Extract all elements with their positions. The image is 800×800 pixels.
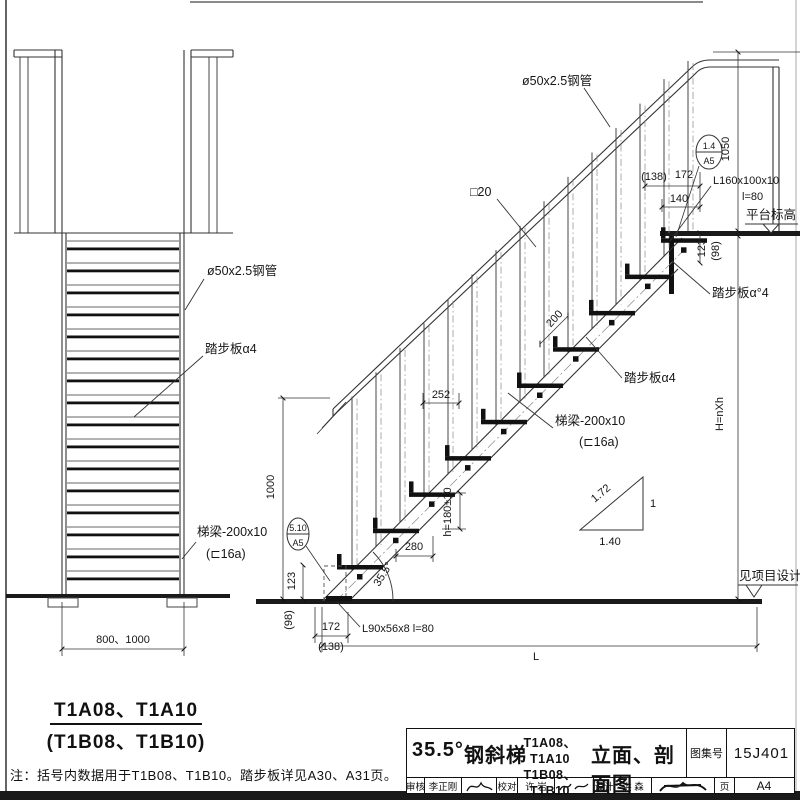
section-tread-label-mid: 踏步板α4: [624, 371, 676, 385]
atlas-number-label: 图集号: [687, 729, 727, 777]
title-block-row-1: 35.5° 钢斜梯 T1A08、T1A10 T1B08、T1B10 立面、剖面图…: [407, 729, 794, 777]
dim-252: 252: [432, 389, 450, 401]
sheet-note: 注：括号内数据用于T1B08、T1B10。踏步板详见A30、A31页。: [10, 765, 410, 784]
front-tread-label: 踏步板α4: [205, 342, 257, 356]
dim-98-bottom: (98): [283, 610, 295, 630]
slope-triangle: 1.72 1 1.40: [580, 477, 656, 548]
detail-bottom-number: 5.10: [289, 523, 307, 533]
front-elevation-view: [6, 50, 233, 607]
atlas-number-value: 15J401: [727, 729, 796, 777]
front-footing-left: [48, 598, 78, 607]
ground-level-symbol: [746, 585, 762, 597]
dim-140: 140: [670, 193, 688, 205]
reviewer-name: 李正刚: [425, 778, 462, 793]
dim-123-bottom: 123: [286, 572, 298, 590]
signature-scribble-1: [464, 779, 494, 793]
front-handrail: [14, 50, 233, 57]
section-tread-label-top: 踏步板α°4: [712, 286, 769, 300]
dim-138-top: (138): [641, 171, 667, 183]
check-label: 校对: [497, 778, 518, 793]
section-stringer: [322, 238, 686, 601]
front-pipe-label: ø50x2.5钢管: [207, 263, 277, 278]
drawing-title: 35.5° 钢斜梯 T1A08、T1A10 T1B08、T1B10 立面、剖面图: [407, 729, 687, 777]
front-width-dim: 800、1000: [96, 634, 150, 646]
caption-models-b: (T1B08、T1B10): [46, 727, 206, 754]
front-view-caption: T1A08、T1A10 (T1B08、T1B10): [46, 695, 206, 754]
front-balusters: [20, 57, 217, 233]
ground-level-label: 见项目设计: [739, 568, 800, 583]
dim-tread-rise: h=180±10: [442, 487, 454, 536]
section-view-annotations: ø50x2.5钢管 □20 200 252 (138) 172 140 1.4 …: [265, 52, 800, 663]
drawing-canvas: 800、1000 ø50x2.5钢管 踏步板α4 梯梁-200x10 (⊏16a…: [0, 0, 800, 800]
dim-98-top: (98): [710, 241, 722, 261]
base-angle-bar: [326, 596, 352, 601]
section-pipe-label: ø50x2.5钢管: [522, 73, 592, 88]
detail-top-sheet: A5: [703, 156, 714, 166]
dim-172-bottom: 172: [322, 621, 340, 633]
dim-123-top: 123: [696, 239, 708, 257]
dim-280: 280: [405, 541, 423, 553]
caption-models-a: T1A08、T1A10: [50, 695, 202, 725]
checker-signature: [555, 778, 594, 793]
front-stringer-label-1: 梯梁-200x10: [197, 524, 267, 539]
angle-top-label-2: l=80: [742, 191, 763, 203]
front-stringer-label-2: (⊏16a): [206, 547, 246, 561]
slope-rise: 1: [650, 498, 656, 510]
dim-height: H=nXh: [714, 397, 726, 431]
front-treads: [67, 241, 179, 580]
section-stringer-label-2: (⊏16a): [579, 435, 619, 449]
dim-1000: 1000: [265, 475, 277, 499]
section-stringer-label-1: 梯梁-200x10: [555, 413, 625, 428]
design-label: 设计: [594, 778, 615, 793]
slope-hyp: 1.72: [589, 482, 613, 505]
front-stringers: [62, 233, 184, 596]
page-label: 页: [715, 778, 735, 793]
slope-run: 1.40: [599, 536, 620, 548]
review-label: 审核: [407, 778, 425, 793]
front-ground-line: [6, 594, 230, 598]
detail-bottom-sheet: A5: [292, 538, 303, 548]
angle-bottom-label: L90x56x8 l=80: [362, 623, 434, 635]
detail-callout-bottom: 5.10 A5: [287, 518, 330, 581]
reviewer-signature: [462, 778, 497, 793]
page-number: A4: [735, 778, 793, 793]
signature-scribble-2: [557, 779, 591, 793]
signature-scribble-3: [655, 778, 711, 793]
designer-name: 洪 森: [615, 778, 652, 793]
dim-1050: 1050: [720, 137, 732, 161]
title-block-row-2: 审核 李正刚 校对 许 岩 设计 洪 森 页 A4: [407, 777, 794, 793]
section-platform-line: [660, 231, 800, 236]
dim-200: 200: [544, 308, 565, 330]
checker-name: 许 岩: [518, 778, 555, 793]
detail-top-number: 1.4: [703, 141, 716, 151]
angle-top-label-1: L160x100x10: [713, 175, 779, 187]
section-baluster-label: □20: [470, 185, 492, 199]
section-balusters: [352, 61, 693, 571]
section-view: [256, 60, 800, 604]
title-models-line1: T1A08、T1A10: [510, 735, 590, 767]
dim-span: L: [533, 651, 539, 663]
drawing-sheet: 800、1000 ø50x2.5钢管 踏步板α4 梯梁-200x10 (⊏16a…: [0, 0, 800, 800]
platform-level-label: 平台标高: [746, 207, 796, 222]
front-posts: [55, 50, 191, 233]
designer-signature: [652, 778, 715, 793]
dim-172-top: 172: [675, 169, 693, 181]
title-block: 35.5° 钢斜梯 T1A08、T1A10 T1B08、T1B10 立面、剖面图…: [406, 728, 795, 794]
title-angle: 35.5°: [412, 739, 464, 762]
platform-angle-bar: [669, 236, 674, 294]
front-footing-right: [167, 598, 197, 607]
